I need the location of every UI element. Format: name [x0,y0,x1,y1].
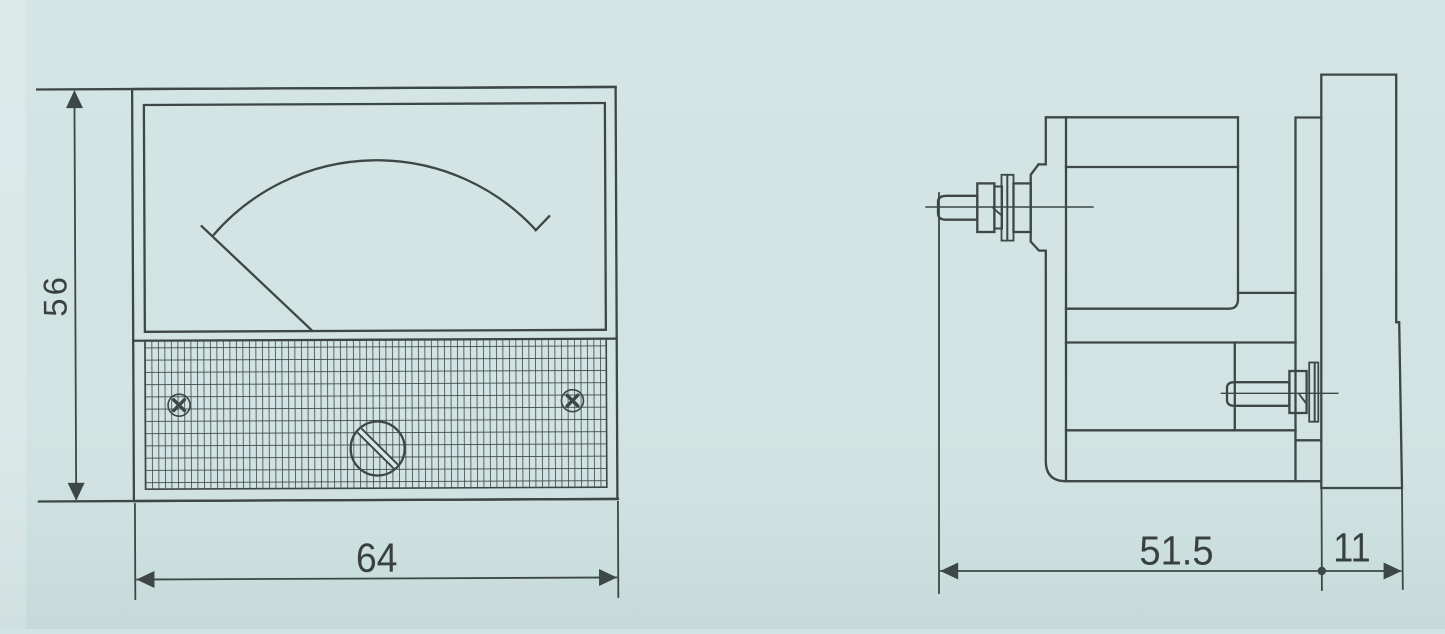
svg-text:56: 56 [36,274,73,317]
svg-text:64: 64 [356,536,398,581]
svg-text:11: 11 [1333,525,1370,571]
svg-text:51.5: 51.5 [1139,528,1213,574]
